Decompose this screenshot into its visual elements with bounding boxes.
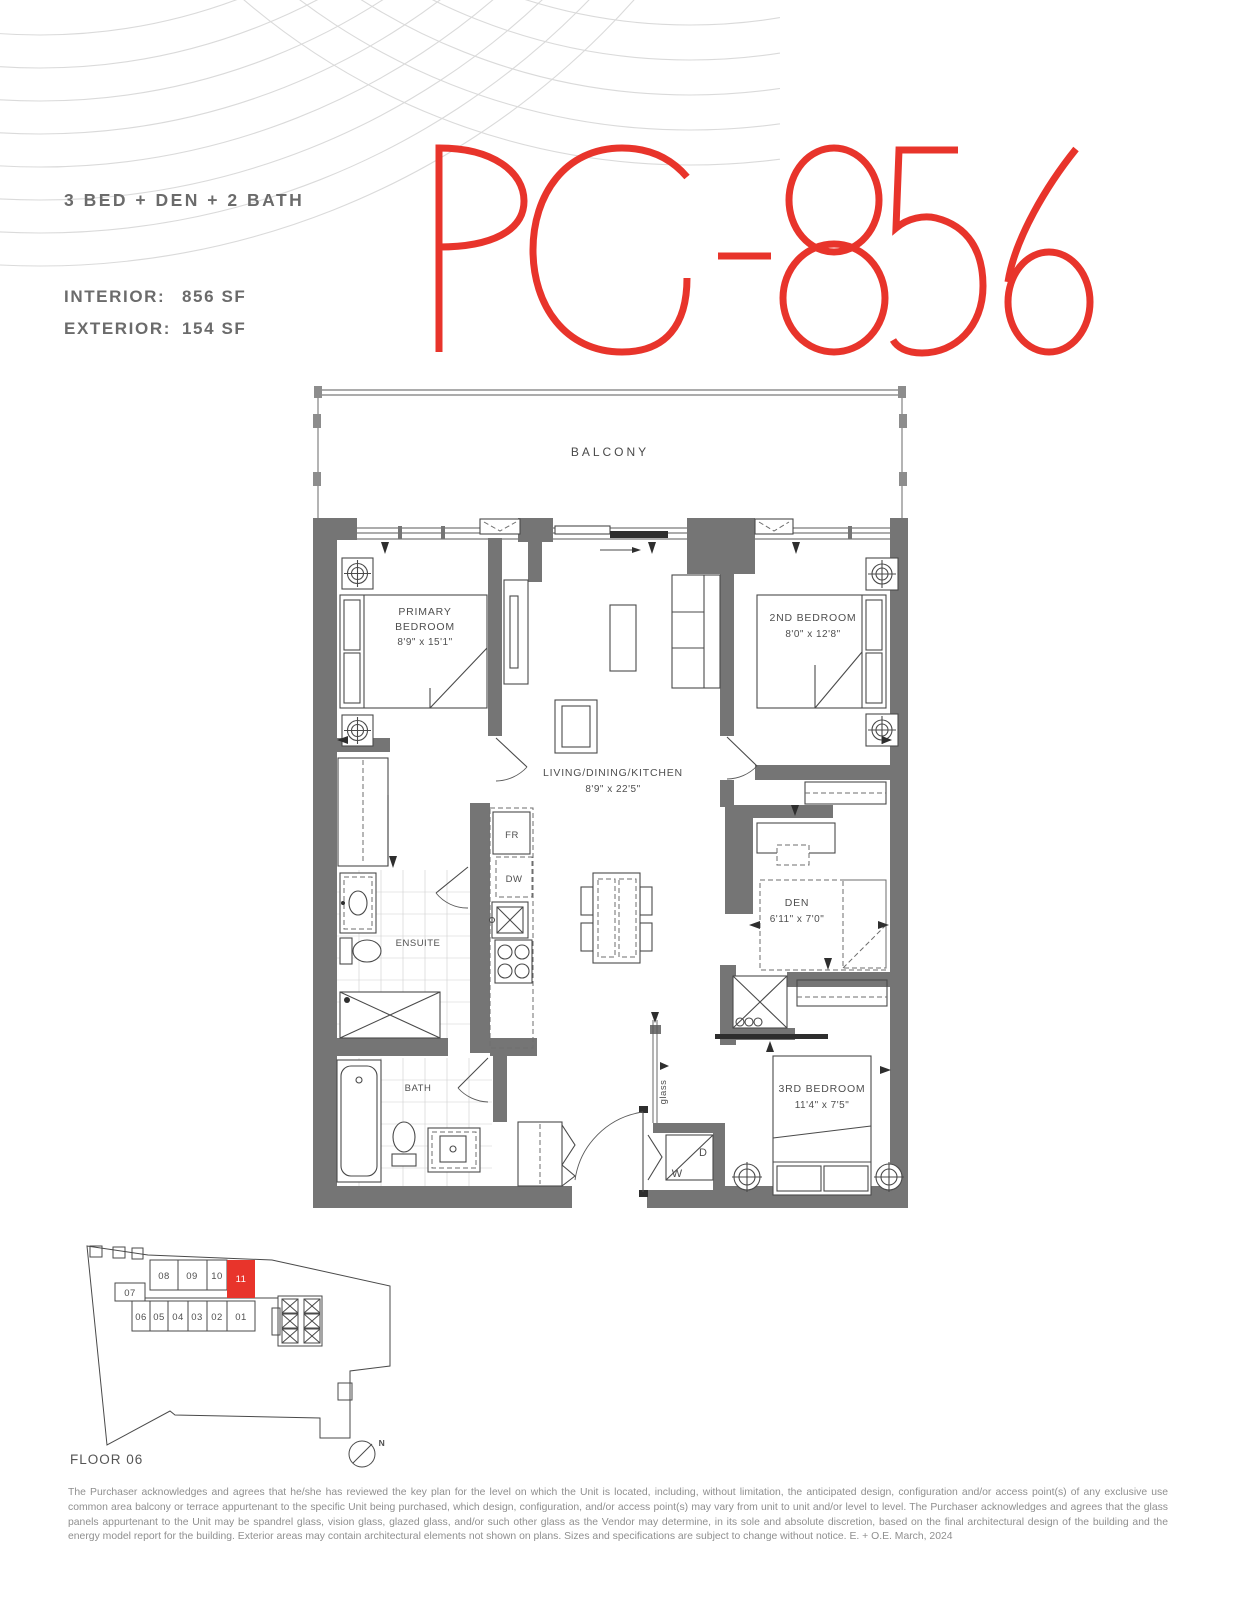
dining-table <box>581 873 652 963</box>
primary-bedroom-dims: 8'9" x 15'1" <box>397 637 452 648</box>
exterior-value: 154 SF <box>182 313 246 345</box>
key-unit-11: 11 <box>236 1274 247 1285</box>
third-bedroom-dims: 11'4" x 7'5" <box>795 1100 850 1111</box>
primary-bedroom-label-1: PRIMARY <box>398 606 451 618</box>
primary-bedroom-label-2: BEDROOM <box>395 621 455 633</box>
key-unit-05: 05 <box>153 1312 165 1323</box>
ensuite-toilet <box>340 938 381 964</box>
den: DEN 6'11" x 7'0" <box>749 805 889 970</box>
elevator-core <box>272 1296 322 1346</box>
bath: BATH <box>337 1058 492 1186</box>
tv-unit <box>504 580 528 684</box>
bath-toilet <box>392 1122 416 1166</box>
den-dims: 6'11" x 7'0" <box>770 914 825 925</box>
exterior-label: EXTERIOR: <box>64 313 182 345</box>
armchair <box>555 700 597 753</box>
living-dining-kitchen: LIVING/DINING/KITCHEN 8'9" x 22'5" <box>490 575 721 1048</box>
key-plan-units: 08 09 10 11 07 06 05 04 03 02 01 <box>115 1260 255 1331</box>
living-dims: 8'9" x 22'5" <box>585 784 640 795</box>
den-label: DEN <box>785 897 810 909</box>
key-unit-01: 01 <box>235 1312 247 1323</box>
key-unit-09: 09 <box>186 1271 198 1282</box>
floorplan-page: 3 BED + DEN + 2 BATH INTERIOR: 856 SF EX… <box>0 0 1236 1600</box>
kitchen-sink <box>490 902 529 938</box>
entry-door <box>575 1106 648 1197</box>
unit-type-label: 3 BED + DEN + 2 BATH <box>64 190 304 211</box>
dryer-label: D <box>699 1147 707 1159</box>
key-plan: 08 09 10 11 07 06 05 04 03 02 01 N <box>60 1218 400 1478</box>
exterior-area-row: EXTERIOR: 154 SF <box>64 313 246 345</box>
ensuite-label: ENSUITE <box>396 938 441 949</box>
key-unit-02: 02 <box>211 1312 223 1323</box>
ensuite-door <box>436 867 468 908</box>
north-arrow-icon: N <box>349 1438 385 1467</box>
second-bedroom-label: 2ND BEDROOM <box>770 612 857 624</box>
entry: glass W D <box>518 1012 713 1197</box>
bathtub <box>337 1060 381 1182</box>
second-bedroom-dims: 8'0" x 12'8" <box>785 629 840 640</box>
floor-plan: BALCONY <box>300 380 920 1225</box>
ensuite-vanity <box>340 873 376 933</box>
third-bedroom-label: 3RD BEDROOM <box>779 1083 866 1095</box>
interior-area-row: INTERIOR: 856 SF <box>64 281 246 313</box>
key-unit-06: 06 <box>135 1312 147 1323</box>
bath-vanity <box>428 1128 480 1172</box>
glass-label: glass <box>658 1080 669 1105</box>
interior-value: 856 SF <box>182 281 246 313</box>
key-unit-08: 08 <box>158 1271 170 1282</box>
key-unit-04: 04 <box>172 1312 184 1323</box>
key-unit-07: 07 <box>124 1288 136 1299</box>
area-stats: INTERIOR: 856 SF EXTERIOR: 154 SF <box>64 281 246 345</box>
dishwasher-label: DW <box>506 874 523 885</box>
coffee-table <box>610 605 636 671</box>
cooktop <box>495 940 532 983</box>
legal-disclaimer: The Purchaser acknowledges and agrees th… <box>68 1486 1168 1545</box>
interior-label: INTERIOR: <box>64 281 182 313</box>
key-unit-03: 03 <box>191 1312 203 1323</box>
primary-door <box>496 738 527 781</box>
fridge-label: FR <box>505 830 519 841</box>
second-bedroom-closet <box>805 782 886 804</box>
sofa <box>672 575 720 688</box>
ceiling-fixture-icon <box>342 558 373 589</box>
bath-label: BATH <box>405 1083 432 1094</box>
den-desk <box>757 823 835 865</box>
key-unit-10: 10 <box>211 1271 223 1282</box>
north-label: N <box>379 1438 386 1448</box>
balcony: BALCONY <box>313 386 907 528</box>
floor-label: FLOOR 06 <box>70 1452 143 1467</box>
ensuite-shower <box>340 992 440 1038</box>
ceiling-fixture-icon <box>866 558 898 590</box>
second-bedroom-door <box>727 737 757 779</box>
washer-label: W <box>672 1168 683 1180</box>
ensuite: ENSUITE <box>337 856 470 1038</box>
plan-code-lettering <box>425 139 1115 361</box>
balcony-label: BALCONY <box>571 445 649 459</box>
living-label: LIVING/DINING/KITCHEN <box>543 767 683 779</box>
entry-closet <box>518 1122 575 1186</box>
primary-closet <box>338 758 388 866</box>
washer-dryer: W D <box>648 1135 713 1180</box>
kitchen: FR DW <box>490 808 534 1048</box>
third-bed <box>773 1056 871 1195</box>
